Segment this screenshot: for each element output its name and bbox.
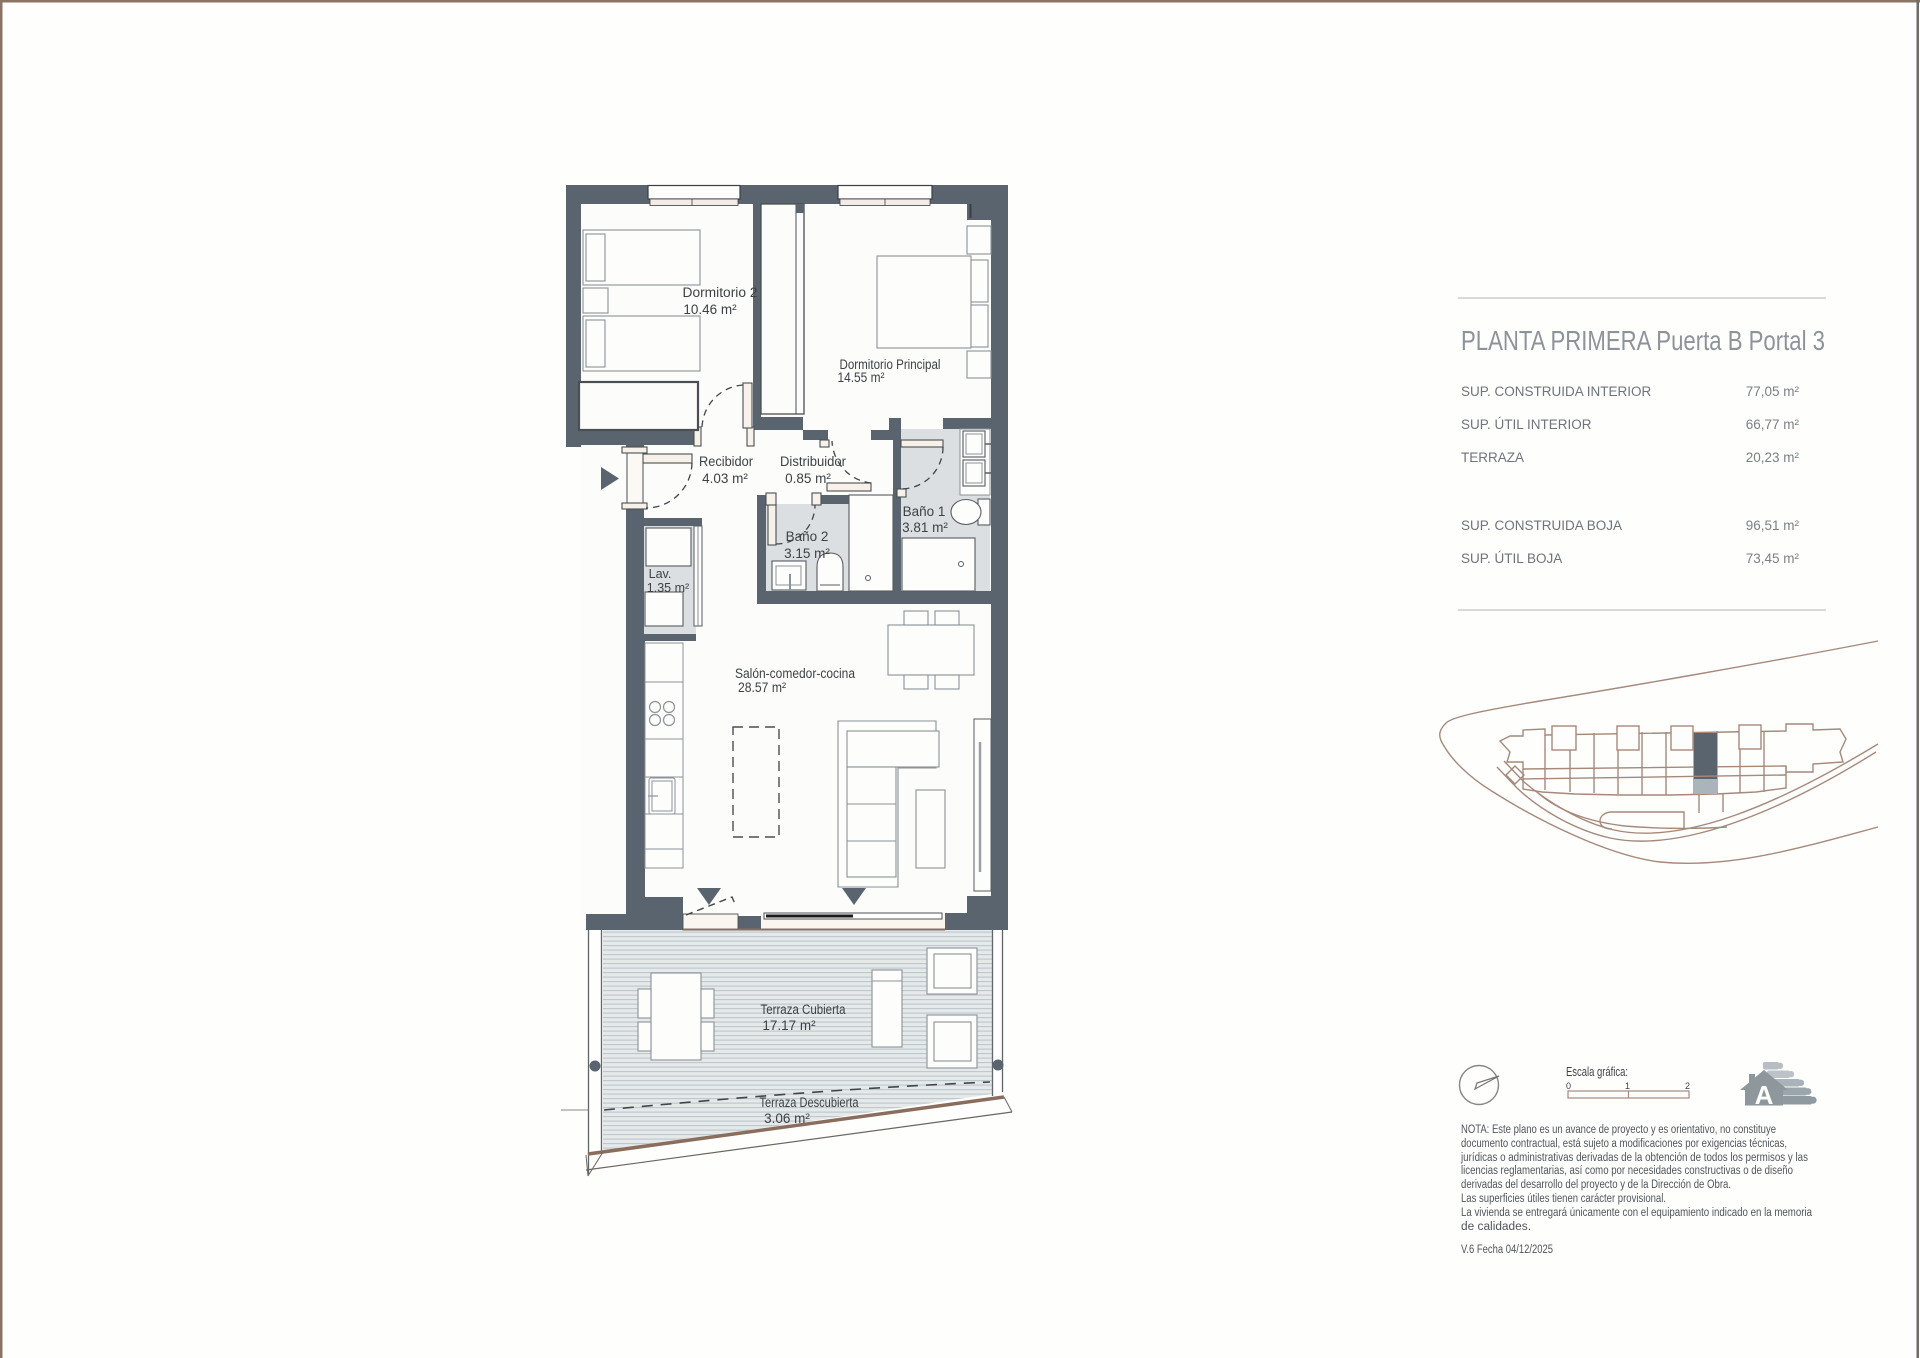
svg-text:Las superficies útiles tienen: Las superficies útiles tienen carácter p… bbox=[1461, 1193, 1666, 1205]
svg-text:jurídicas o administrativas de: jurídicas o administrativas derivadas de… bbox=[1460, 1152, 1808, 1164]
svg-text:3.06 m²: 3.06 m² bbox=[764, 1111, 810, 1126]
svg-text:Dormitorio 2: Dormitorio 2 bbox=[683, 285, 758, 300]
svg-text:2: 2 bbox=[1685, 1081, 1690, 1091]
svg-text:66,77 m²: 66,77 m² bbox=[1746, 417, 1800, 432]
svg-text:de calidades.: de calidades. bbox=[1461, 1221, 1531, 1233]
svg-text:77,05 m²: 77,05 m² bbox=[1746, 384, 1800, 399]
svg-text:Terraza Descubierta: Terraza Descubierta bbox=[760, 1095, 859, 1110]
svg-text:SUP. CONSTRUIDA INTERIOR: SUP. CONSTRUIDA INTERIOR bbox=[1461, 384, 1652, 399]
svg-text:1.35 m²: 1.35 m² bbox=[647, 581, 689, 595]
svg-text:Terraza Cubierta: Terraza Cubierta bbox=[761, 1002, 846, 1017]
svg-text:Baño 2: Baño 2 bbox=[786, 529, 829, 544]
svg-text:Escala gráfica:: Escala gráfica: bbox=[1566, 1064, 1628, 1079]
svg-text:derivadas del desarrollo del p: derivadas del desarrollo del proyecto y … bbox=[1461, 1179, 1731, 1191]
svg-text:NOTA: Este plano es un avance: NOTA: Este plano es un avance de proyect… bbox=[1461, 1124, 1776, 1136]
svg-text:4.03 m²: 4.03 m² bbox=[702, 471, 748, 486]
svg-text:SUP. CONSTRUIDA BOJA: SUP. CONSTRUIDA BOJA bbox=[1461, 518, 1622, 533]
svg-text:Distribuidor: Distribuidor bbox=[780, 454, 846, 469]
svg-text:SUP. ÚTIL INTERIOR: SUP. ÚTIL INTERIOR bbox=[1461, 417, 1592, 432]
svg-text:Lav.: Lav. bbox=[649, 567, 672, 581]
svg-text:SUP. ÚTIL BOJA: SUP. ÚTIL BOJA bbox=[1461, 551, 1562, 566]
svg-text:3.15 m²: 3.15 m² bbox=[784, 546, 830, 561]
svg-text:3.81 m²: 3.81 m² bbox=[902, 520, 948, 535]
svg-text:17.17 m²: 17.17 m² bbox=[762, 1018, 816, 1033]
svg-text:0.85 m²: 0.85 m² bbox=[785, 471, 831, 486]
svg-text:documento contractual, está su: documento contractual, está sujeto a mod… bbox=[1461, 1138, 1787, 1150]
svg-text:28.57 m²: 28.57 m² bbox=[738, 680, 786, 695]
svg-text:licencias reglamentarias, así: licencias reglamentarias, así como por n… bbox=[1461, 1165, 1793, 1177]
svg-text:Salón-comedor-cocina: Salón-comedor-cocina bbox=[735, 666, 855, 681]
svg-text:Recibidor: Recibidor bbox=[699, 454, 753, 469]
svg-text:20,23 m²: 20,23 m² bbox=[1746, 450, 1800, 465]
svg-text:PLANTA PRIMERA Puerta B Port: PLANTA PRIMERA Puerta B Portal 3 bbox=[1461, 325, 1825, 356]
svg-text:Baño 1: Baño 1 bbox=[903, 504, 946, 519]
svg-text:V.6 Fecha 04/12/2025: V.6 Fecha 04/12/2025 bbox=[1461, 1244, 1553, 1256]
svg-text:La vivienda se entregará única: La vivienda se entregará únicamente con … bbox=[1461, 1207, 1812, 1219]
svg-text:73,45 m²: 73,45 m² bbox=[1746, 551, 1800, 566]
svg-text:0: 0 bbox=[1566, 1081, 1571, 1091]
svg-text:14.55 m²: 14.55 m² bbox=[838, 370, 885, 385]
svg-text:TERRAZA: TERRAZA bbox=[1461, 450, 1524, 465]
svg-text:1: 1 bbox=[1625, 1081, 1630, 1091]
svg-text:10.46 m²: 10.46 m² bbox=[683, 302, 737, 317]
svg-text:A: A bbox=[1755, 1080, 1774, 1110]
svg-text:96,51 m²: 96,51 m² bbox=[1746, 518, 1800, 533]
